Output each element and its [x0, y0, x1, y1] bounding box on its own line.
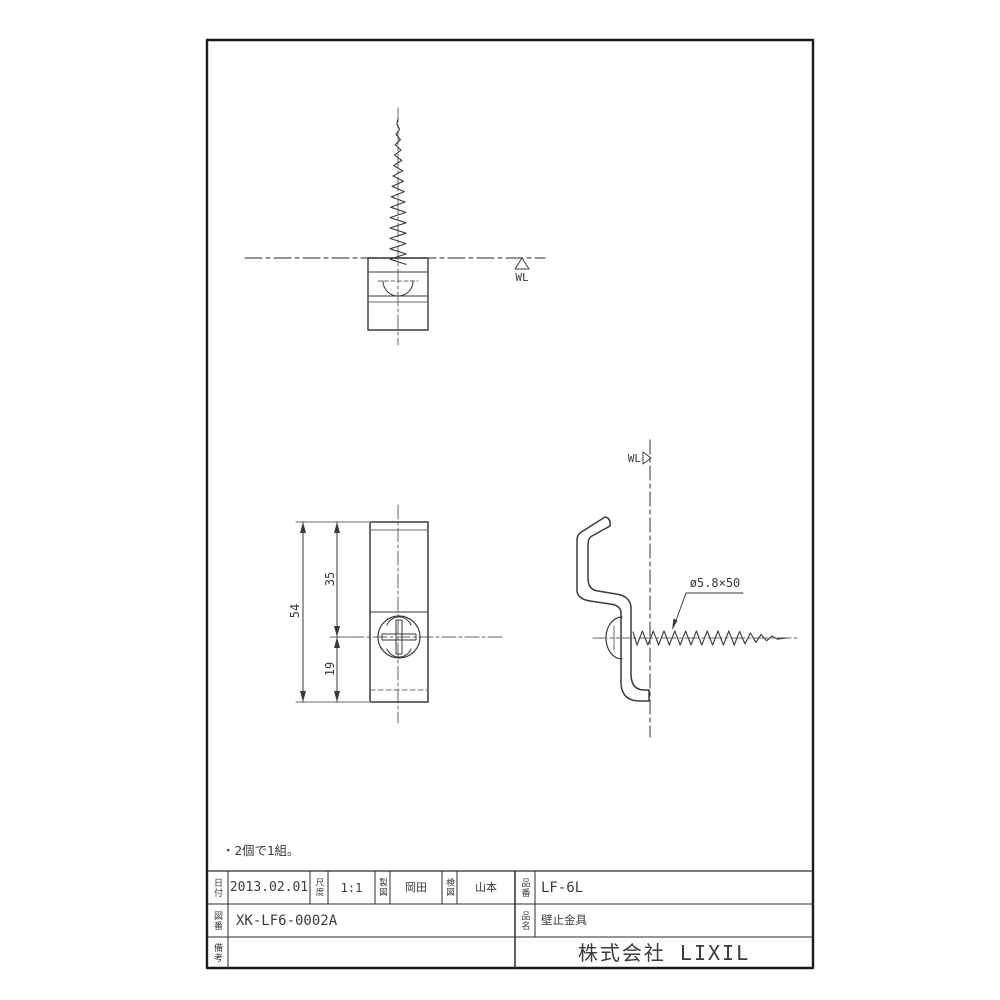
screw-spec-label: ø5.8×50: [684, 576, 746, 590]
wl-label-top: WL: [508, 270, 536, 284]
drafter-label: 製図: [375, 871, 390, 904]
company-name: 株式会社 LIXIL: [515, 937, 813, 968]
dim-overall-height: 54: [288, 597, 302, 625]
cad-drawing-page: WL WL ø5.8×50 54 35 19 ・2個で1組。 日付 2013.0…: [0, 0, 1000, 1000]
part-name-label: 品名: [515, 904, 535, 937]
top-view: [245, 108, 545, 345]
dim-upper-span: 35: [323, 565, 337, 593]
scale-label: 尺度: [310, 871, 328, 904]
checker-label: 検図: [442, 871, 457, 904]
drawing-no-label: 図番: [207, 904, 228, 937]
drawing-note: ・2個で1組。: [222, 843, 422, 859]
sheet-border: [207, 40, 813, 968]
drawing-no-value: XK-LF6-0002A: [236, 904, 506, 937]
checker-value: 山本: [457, 871, 515, 904]
dim-lower-span: 19: [323, 655, 337, 683]
remarks-label: 備考: [207, 937, 228, 968]
wl-label-side: WL: [616, 451, 641, 465]
date-label: 日付: [207, 871, 228, 904]
drafter-value: 岡田: [390, 871, 442, 904]
remarks-value: [236, 937, 506, 968]
part-no-label: 品番: [515, 871, 535, 904]
date-value: 2013.02.01: [228, 871, 310, 904]
part-no-value: LF-6L: [541, 871, 801, 904]
scale-value: 1:1: [328, 871, 375, 904]
wl-marker-icon: [515, 258, 529, 269]
screw-spec-leader: [674, 593, 743, 626]
part-name-value: 壁止金具: [541, 904, 801, 937]
bracket-profile: [577, 517, 649, 701]
leader-arrow: [672, 619, 678, 631]
front-view: [296, 505, 505, 723]
drawing-canvas: [0, 0, 1000, 1000]
